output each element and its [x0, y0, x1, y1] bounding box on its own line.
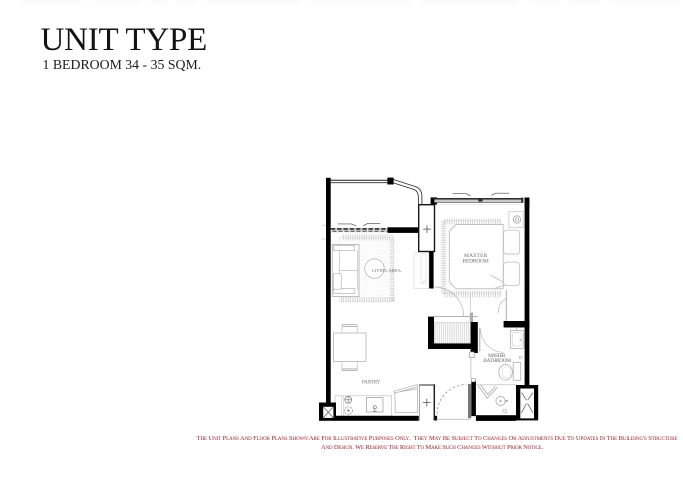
svg-text:BATHROOM: BATHROOM: [483, 358, 512, 364]
svg-text:BEDROOM: BEDROOM: [463, 259, 490, 265]
svg-text:PANTRY: PANTRY: [362, 380, 381, 385]
svg-text:LIVING AREA: LIVING AREA: [372, 268, 402, 273]
